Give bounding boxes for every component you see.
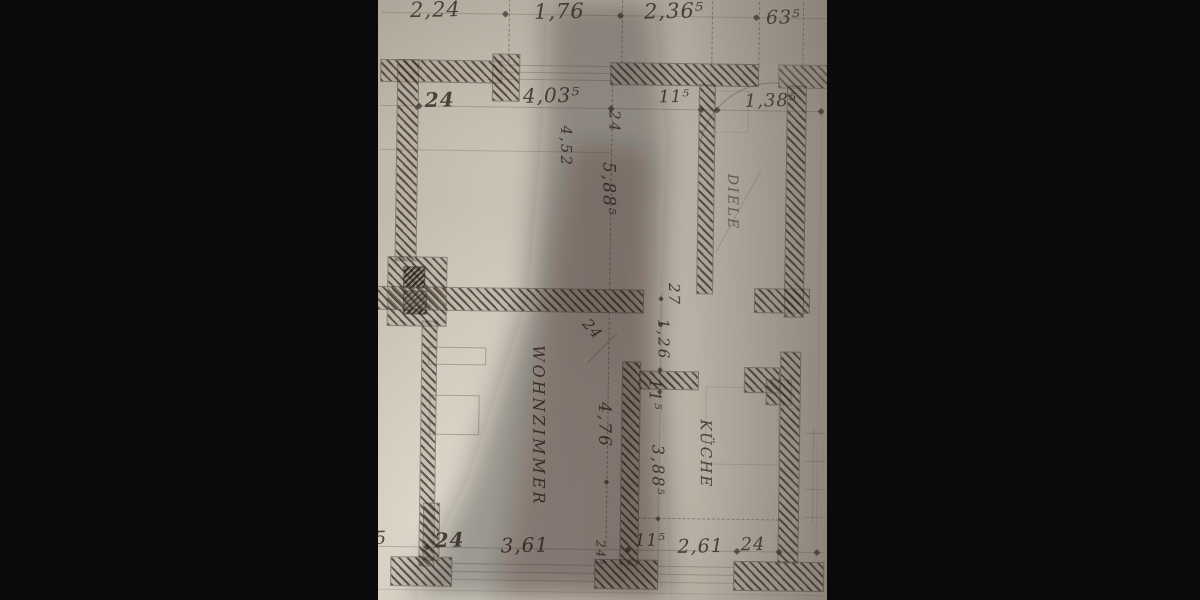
vignette-top [378, 0, 827, 600]
left-letterbox [0, 0, 378, 600]
right-letterbox [827, 0, 1200, 600]
screenshot: 2,24 1,76 2,36⁵ 63⁵ 24 4,03⁵ 24 11⁵ 1,38… [0, 0, 1200, 600]
floorplan-photo: 2,24 1,76 2,36⁵ 63⁵ 24 4,03⁵ 24 11⁵ 1,38… [378, 0, 827, 600]
